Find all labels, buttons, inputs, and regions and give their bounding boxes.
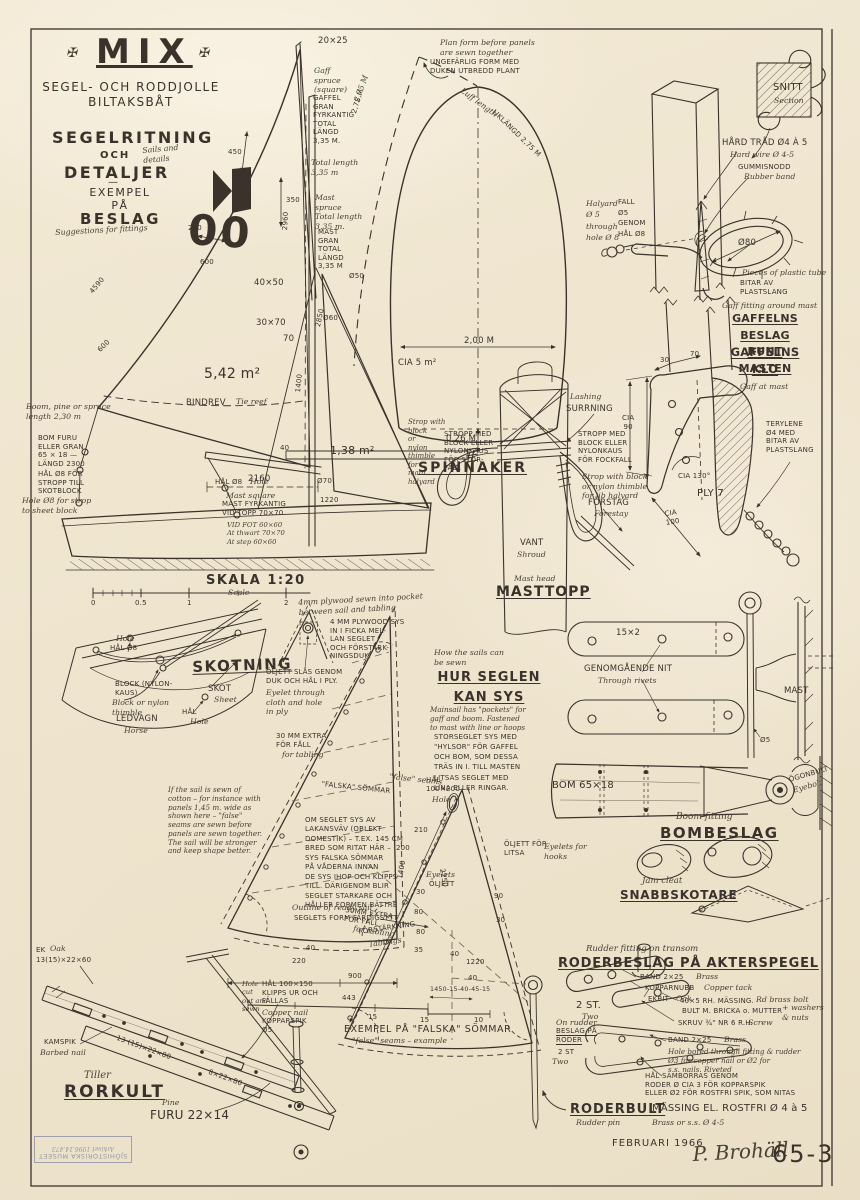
rudder-pin-note-en: Brass or s.s. Ø 4-5 bbox=[652, 1118, 724, 1128]
dim-cia90: CIA 90 bbox=[622, 414, 634, 431]
dim-220: 220 bbox=[292, 957, 306, 966]
band-b-label-en: Brass bbox=[724, 1035, 746, 1045]
halyard-note-sv: FALL Ø5 GENOM HÅL Ø8 bbox=[618, 197, 646, 239]
gaff-note-sv: GAFFEL GRAN FYRKANTIG TOTAL LÄNGD 3,35 M… bbox=[313, 94, 354, 145]
horse-label-sv: LEDVAGN bbox=[116, 714, 158, 724]
oak-label-sv: EKBIT bbox=[648, 995, 669, 1004]
example-caption-sv: EXEMPEL PÅ "FALSKA" SÖMMAR bbox=[344, 1024, 511, 1036]
boom-fitting-title: BOMBESLAG bbox=[660, 824, 779, 842]
spinnaker-width-dim: 2,00 M bbox=[464, 336, 494, 346]
dim-30b: 30 bbox=[496, 916, 505, 925]
boom-fitting-title-en: Boom fitting bbox=[676, 812, 733, 823]
stamp-line2: Arkivet 1996.14.473 bbox=[38, 1144, 128, 1152]
dim-40c: 40 bbox=[468, 974, 477, 983]
sheeting-hole-sv: HÅL Ø8 bbox=[110, 644, 137, 653]
boom-note-en: Boom, pine or spruce length 2,30 m bbox=[26, 402, 111, 421]
pine-label-en: Pine bbox=[162, 1098, 179, 1108]
pine-label-sv: FURU 22×14 bbox=[150, 1108, 229, 1123]
band-dim: 15×2 bbox=[616, 628, 640, 638]
lashing-label-en: Lashing bbox=[570, 392, 601, 402]
sewing-body-en: Mainsail has "pockets" for gaff and boom… bbox=[430, 706, 526, 732]
mast-hole-label: HÅL Ø8 bbox=[215, 478, 242, 487]
scale-tick-1: 1 bbox=[187, 599, 192, 608]
sewing-title: HUR SEGLEN KAN SYS bbox=[434, 668, 544, 707]
dim-200b: 200 bbox=[396, 844, 410, 853]
dim-40b: 40 bbox=[450, 950, 459, 959]
claw-dim-70: 70 bbox=[690, 350, 699, 359]
dim-2960: 2960 bbox=[281, 211, 290, 230]
barbed-nail-sv: KAMSPIK bbox=[44, 1038, 76, 1047]
bolt-label-sv: 40×5 RH. MÄSSING. bbox=[680, 997, 754, 1006]
head-hole-en: Hole bbox=[432, 795, 451, 805]
masthead-title: MASTTOPP bbox=[496, 584, 591, 601]
mast-square-detail: VID FOT 60×60 At thwart 70×70 At step 60… bbox=[227, 521, 285, 546]
subtitle: SEGEL- OCH RODDJOLLE BILTAKSBÅT bbox=[36, 80, 226, 109]
mast-label: MAST bbox=[784, 686, 809, 696]
mast-note-sv: MAST GRAN TOTAL LÄNGD 3,35 M bbox=[318, 228, 344, 271]
wire-label-sv: HÅRD TRÅD Ø4 À 5 bbox=[722, 138, 807, 148]
ornament-left-icon: ✠ bbox=[66, 46, 77, 62]
heading-exempel: EXEMPEL PÅ bbox=[70, 186, 170, 213]
tiller-title-en: Tiller bbox=[84, 1070, 111, 1082]
sail-number: 00 bbox=[186, 204, 254, 260]
scale-label-en: Scale bbox=[228, 588, 249, 598]
jib-eyelets-en: Eyelets for hooks bbox=[544, 842, 587, 861]
drawing-sheet: ✠ MIX ✠ SEGEL- OCH RODDJOLLE BILTAKSBÅT … bbox=[0, 0, 860, 1200]
gaff-claw-title-en: Gaff at mast bbox=[740, 382, 788, 392]
dim-formula: 1450-15-40-45-15 bbox=[430, 986, 490, 994]
dim-900: 900 bbox=[348, 972, 362, 981]
masthead-title-en: Mast head bbox=[514, 574, 556, 584]
shroud-label-sv: VANT bbox=[520, 538, 543, 548]
rubber-label-sv: GUMMISNODD bbox=[738, 163, 791, 172]
mast-hole-label-en: Hole bbox=[250, 477, 269, 487]
rudder-pin-title: RODERBULT bbox=[570, 1102, 665, 1118]
spinnaker-drawing bbox=[354, 57, 566, 453]
main-strop-note-sv: STROPP MED BLOCK ELLER NYLONKAUS FÖR STO… bbox=[444, 430, 493, 473]
dim-jib-dia: Ø70 bbox=[317, 477, 332, 486]
hem-note-sv: 30 MM EXTRA FÖR FÅLL bbox=[276, 732, 326, 749]
forestay-label-sv: FÖRSTAG bbox=[588, 498, 629, 508]
archive-stamp: SJÖHISTORISKA MUSEET Arkivet 1996.14.473 bbox=[34, 1136, 132, 1163]
heading-segelritning: SEGELRITNING bbox=[52, 128, 214, 148]
cotton-note-en: If the sail is sewn of cotton – for inst… bbox=[168, 786, 262, 856]
claw-ply: PLY 7 bbox=[697, 488, 724, 500]
scale-tick-05: 0.5 bbox=[135, 599, 147, 608]
sheet-label-en: Sheet bbox=[214, 695, 237, 705]
boom-fitting-drawing bbox=[552, 592, 835, 830]
dim-mast-dia: Ø50 bbox=[349, 272, 364, 281]
boom-hole-note: HÅL Ø8 FÖR STROPP TILL SKOTBLOCK bbox=[38, 470, 84, 496]
date-label: FEBRUARI 1966 bbox=[612, 1138, 704, 1150]
gaff-fitting-title-en: Gaff fitting around mast bbox=[722, 301, 817, 311]
copper-nail-sv: KOPPARSPIK Ø5 bbox=[262, 1017, 307, 1034]
stamp-line1: SJÖHISTORISKA MUSEET bbox=[38, 1152, 128, 1160]
rivet-label-en: Through rivets bbox=[598, 676, 657, 686]
dim-80a: 80 bbox=[414, 908, 423, 917]
dim-jib-foot: 1220 bbox=[320, 496, 339, 505]
horse-label-en: Horse bbox=[124, 726, 148, 736]
boom-section-label: BOM 65×18 bbox=[552, 780, 614, 792]
dim-15a: 15 bbox=[368, 1013, 377, 1022]
rivet-hole-note-en: Hole bored through fitting & rudder Ø3 f… bbox=[668, 1048, 800, 1074]
mast-square-sv: MAST FYRKANTIG VID TOPP 70×70 bbox=[222, 500, 286, 517]
rudder-pin-en: Rudder pin bbox=[576, 1118, 620, 1128]
rivet-label-sv: GENOMGÅENDE NIT bbox=[584, 664, 672, 674]
dim-210: 210 bbox=[414, 826, 428, 835]
dim-450: 450 bbox=[228, 148, 242, 157]
tube-label-sv: BITAR AV PLASTSLANG bbox=[740, 279, 788, 296]
boom-hole-note-en: Hole Ø8 for strop to sheet block bbox=[22, 496, 91, 515]
dim-443: 443 bbox=[342, 994, 356, 1003]
dim-600a: 600 bbox=[200, 258, 214, 267]
on-rudder-sv: BESLAG PÅ RODER bbox=[556, 1027, 597, 1044]
gaff-note-en2: Total length 3,35 m bbox=[311, 158, 358, 177]
spinnaker-plan-note-sv: UNGEFÄRLIG FORM MED DUKEN UTBREDD PLANT bbox=[430, 58, 520, 75]
mast-note-en: Mast spruce Total length 3,35 m. bbox=[315, 193, 362, 231]
claw-dim-30: 30 bbox=[660, 356, 669, 365]
dim-40a: 40 bbox=[306, 944, 315, 953]
rudder-pin-note-sv: MÄSSING EL. ROSTFRI Ø 4 à 5 bbox=[652, 1103, 808, 1115]
halyard-note-en: Halyard Ø 5 through hole Ø 8 bbox=[586, 198, 619, 243]
band-a-label: BAND 2×25 bbox=[640, 973, 683, 982]
panel-note-sv: OM SEGLET SYS AV LAKANSVÄV (OBLEKT DOMES… bbox=[305, 816, 403, 910]
tack-label-sv: KOPPARNUBB bbox=[645, 984, 694, 993]
reef-label-sv: BINDREV bbox=[186, 398, 226, 408]
eyelet-note-sv: ÖLJETT SLÅS GENOM DUK OCH HÅL I PLY. bbox=[266, 668, 342, 685]
hole-label-en: Hole bbox=[190, 717, 209, 727]
jib-eyelets-sv: ÖLJETT FÖR LITSA bbox=[504, 840, 547, 857]
jib-strop-note-sv: STROPP MED BLOCK ELLER NYLONKAUS FÖR FOC… bbox=[578, 430, 632, 464]
dim-mast-section-top: 40×50 bbox=[254, 278, 284, 288]
example-caption-en: "false" seams – example bbox=[352, 1036, 447, 1046]
block-label-sv: BLOCK (NYLON- KAUS) bbox=[115, 680, 172, 697]
section-label-sv: SNITT bbox=[773, 82, 803, 94]
rudder-title: RODERBESLAG PÅ AKTERSPEGEL bbox=[558, 956, 819, 972]
wire-label-en: Hard wire Ø 4-5 bbox=[730, 150, 794, 160]
page-title: MIX bbox=[96, 32, 193, 73]
boom-note-sv: BOM FURU ELLER GRAN 65 × 18 — LÄNGD 2300 bbox=[38, 434, 85, 468]
ply-pocket-note-sv: 4 MM PLYWOOD SYS IN I FICKA MEL- LAN SEG… bbox=[330, 618, 404, 661]
dim-mast-section: 30×70 bbox=[256, 318, 286, 328]
spinnaker-plan-note-en: Plan form before panels are sewn togethe… bbox=[440, 38, 535, 57]
dim-1220: 1220 bbox=[466, 958, 485, 967]
band-b-label: BAND 2×25 bbox=[668, 1036, 711, 1045]
band-a-label-en: Brass bbox=[696, 972, 718, 982]
cut-hole-sv: HÅL 100×150 KLIPPS UR OCH FÄLLAS bbox=[262, 980, 318, 1006]
dim-350: 350 bbox=[286, 196, 300, 205]
tack-label-en: Copper tack bbox=[704, 983, 752, 993]
spinnaker-area: CIA 5 m² bbox=[398, 358, 436, 368]
jam-cleat-title-en: Jam cleat bbox=[642, 876, 682, 886]
qty-label: 2 ST. bbox=[576, 1000, 601, 1012]
note-sails-details: Sails and details bbox=[142, 143, 180, 165]
terylene-note: TERYLENE Ø4 MED BITAR AV PLASTSLANG bbox=[766, 420, 814, 454]
reef-label-en: Tie reef bbox=[236, 397, 267, 407]
dim-80b: 80 bbox=[416, 928, 425, 937]
claw-angle: CIA 130° bbox=[678, 472, 710, 481]
rivet-hole-note-sv: HÅL SAMBORRAS GENOM RODER Ø CIA 3 FÖR KO… bbox=[645, 1072, 795, 1098]
scale-tick-2: 2 bbox=[284, 599, 289, 608]
dim-30a: 30 bbox=[416, 888, 425, 897]
dim-40: 40 bbox=[280, 444, 289, 453]
claw-cia100: CIA 100 bbox=[664, 508, 680, 527]
section-label-en: Section bbox=[774, 96, 804, 106]
tiller-oak-en: Oak bbox=[50, 944, 66, 954]
ring-dim: Ø80 bbox=[738, 238, 756, 248]
main-strop-note-en: Strop with block or nylon thimble for ma… bbox=[408, 418, 445, 486]
screw-label-sv: SKRUV ¾" NR 6 R.H. bbox=[678, 1019, 753, 1028]
dim-35: 35 bbox=[414, 946, 423, 955]
jib-area: 1,38 m² bbox=[330, 444, 375, 457]
bolt2-label-en: + washers & nuts bbox=[782, 1003, 824, 1022]
dim-masthead: 20×25 bbox=[318, 36, 348, 46]
dim-90: 90 bbox=[494, 892, 503, 901]
eyelet-note-en: Eyelet through cloth and hole in ply bbox=[266, 688, 325, 717]
dim-dia60: Ø60 bbox=[323, 314, 338, 323]
forestay-label-en: Forestay bbox=[594, 509, 628, 519]
ornament-right-icon: ✠ bbox=[198, 46, 209, 62]
tiller-oak-sv: EK bbox=[36, 946, 45, 955]
jib-strop-note-en: Strop with block or nylon thimble for ji… bbox=[582, 472, 647, 501]
gaff-note-en: Gaff spruce (square) bbox=[314, 66, 347, 95]
shroud-label-en: Shroud bbox=[517, 550, 546, 560]
tube-label-en: Pieces of plastic tube bbox=[742, 268, 826, 278]
drawing-number: 65-3 bbox=[772, 1140, 834, 1169]
barbed-nail-en: Barbed nail bbox=[40, 1048, 86, 1058]
hole-label-sv: HÅL bbox=[182, 708, 197, 717]
qty2-label: 2 ST bbox=[558, 1048, 574, 1057]
hem-note-en: for tabling bbox=[282, 750, 324, 760]
sheeting-hole-en: Hole bbox=[116, 634, 135, 644]
sewing-intro-en: How the sails can be sewn bbox=[434, 648, 504, 667]
dim-70: 70 bbox=[283, 334, 294, 344]
rudder-title-en: Rudder fitting on transom bbox=[586, 944, 698, 954]
tiller-oak-dim: 13(15)×22×60 bbox=[36, 956, 91, 965]
tiller-title: RORKULT bbox=[64, 1082, 165, 1103]
pin-dia: Ø5 bbox=[760, 736, 770, 745]
jam-cleat-title: SNABBSKOTARE bbox=[620, 888, 737, 903]
heading-och: OCH bbox=[100, 150, 130, 162]
scale-label: SKALA 1:20 bbox=[206, 573, 306, 589]
qty2-label-en: Two bbox=[552, 1057, 568, 1067]
screw-label-en: Screw bbox=[748, 1018, 773, 1028]
sheet-label-sv: SKOT bbox=[208, 684, 231, 694]
gaff-claw-title: GAFFELNS KLO bbox=[728, 344, 802, 379]
lashing-label-sv: SURRNING bbox=[566, 404, 613, 414]
main-sail-area: 5,42 m² bbox=[204, 366, 260, 383]
scale-tick-0: 0 bbox=[91, 599, 96, 608]
bolt2-label-sv: BULT M. BRICKA o. MUTTER bbox=[682, 1007, 782, 1016]
rubber-label-en: Rubber band bbox=[744, 172, 795, 182]
